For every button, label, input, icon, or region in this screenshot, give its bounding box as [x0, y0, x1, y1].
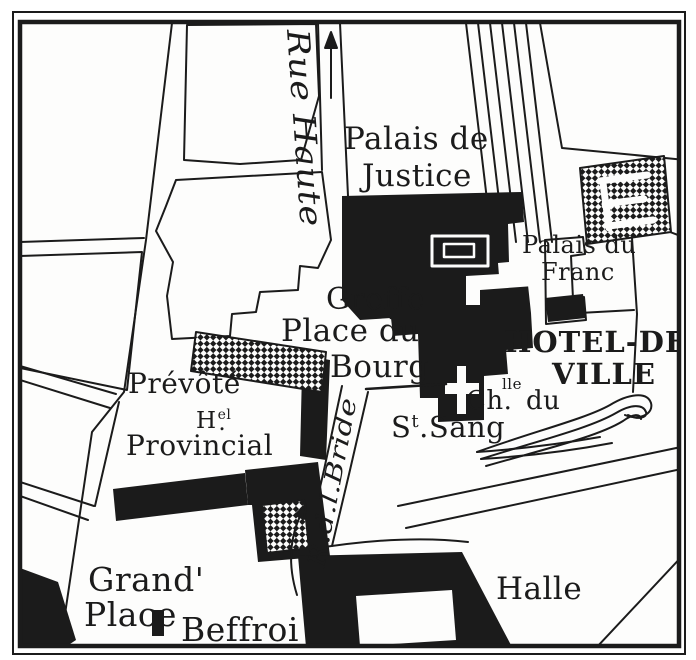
halles-courtyard: [356, 590, 456, 646]
label-hotel-de: HOTEL-DE: [504, 325, 688, 359]
label-beffroi: Beffroi: [181, 610, 299, 649]
label-greffe: Greffe: [326, 282, 425, 317]
label-halle: Halle: [496, 571, 582, 607]
label-ville: VILLE: [551, 357, 656, 391]
label-prevote: Prévôté: [128, 367, 241, 400]
label-place-du: Place du: [281, 313, 420, 349]
label-palais-du-franc-line1: Palais du: [522, 231, 636, 259]
label-place: Place: [84, 595, 177, 634]
label-bourg: Bourg: [330, 349, 429, 385]
label-chapelle-du: du: [526, 386, 560, 416]
map-page: Rue Haute Palais de Justice Palais du Fr…: [0, 0, 696, 660]
st-sang-rest: .Sang: [419, 410, 505, 444]
label-provincial: Provincial: [126, 429, 273, 462]
label-palais-du-franc-line2: Franc: [541, 258, 615, 286]
bruges-bourg-map: Rue Haute Palais de Justice Palais du Fr…: [0, 0, 696, 660]
st-sang-s: S: [391, 410, 411, 444]
label-chapelle-sup: lle: [502, 375, 522, 393]
label-palais-de-justice-line1: Palais de: [344, 121, 489, 157]
label-palais-de-justice-line2: Justice: [359, 158, 472, 194]
building-franc-annex: [545, 294, 586, 322]
label-st-sang: St.Sang: [391, 410, 505, 444]
label-grand: Grand': [88, 560, 204, 599]
